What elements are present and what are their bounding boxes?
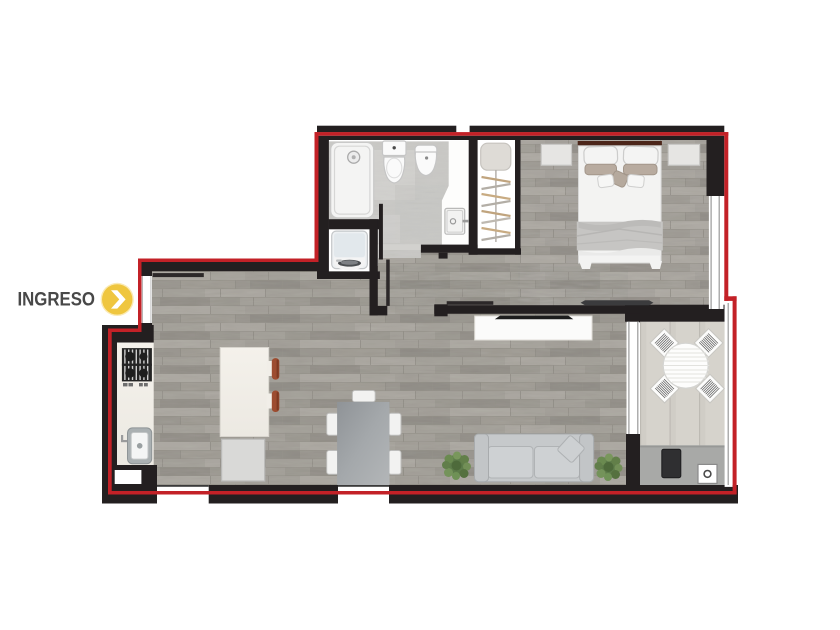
svg-text:INGRESO: INGRESO: [18, 289, 96, 311]
